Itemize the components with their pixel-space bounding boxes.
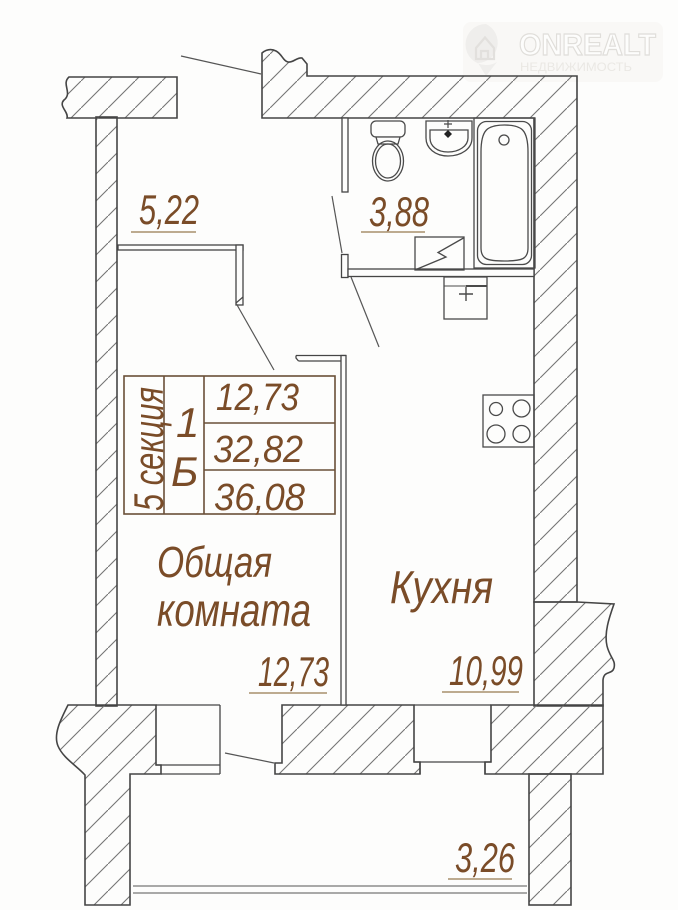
svg-text:1: 1	[176, 399, 199, 446]
svg-text:5,22: 5,22	[139, 186, 199, 233]
svg-text:3,26: 3,26	[455, 834, 515, 881]
svg-text:Кухня: Кухня	[390, 561, 493, 613]
svg-text:10,99: 10,99	[449, 647, 523, 694]
svg-text:комната: комната	[157, 584, 311, 636]
svg-text:32,82: 32,82	[213, 429, 303, 471]
svg-text:ONREALT: ONREALT	[519, 27, 656, 62]
svg-text:Б: Б	[171, 448, 198, 495]
svg-text:36,08: 36,08	[214, 477, 305, 519]
svg-text:Общая: Общая	[157, 538, 272, 587]
svg-text:12,73: 12,73	[258, 648, 329, 695]
svg-text:12,73: 12,73	[216, 377, 299, 419]
svg-text:5 секция: 5 секция	[125, 387, 172, 511]
svg-text:3,88: 3,88	[369, 188, 429, 235]
svg-text:НЕДВИЖИМОСТЬ: НЕДВИЖИМОСТЬ	[520, 60, 632, 74]
